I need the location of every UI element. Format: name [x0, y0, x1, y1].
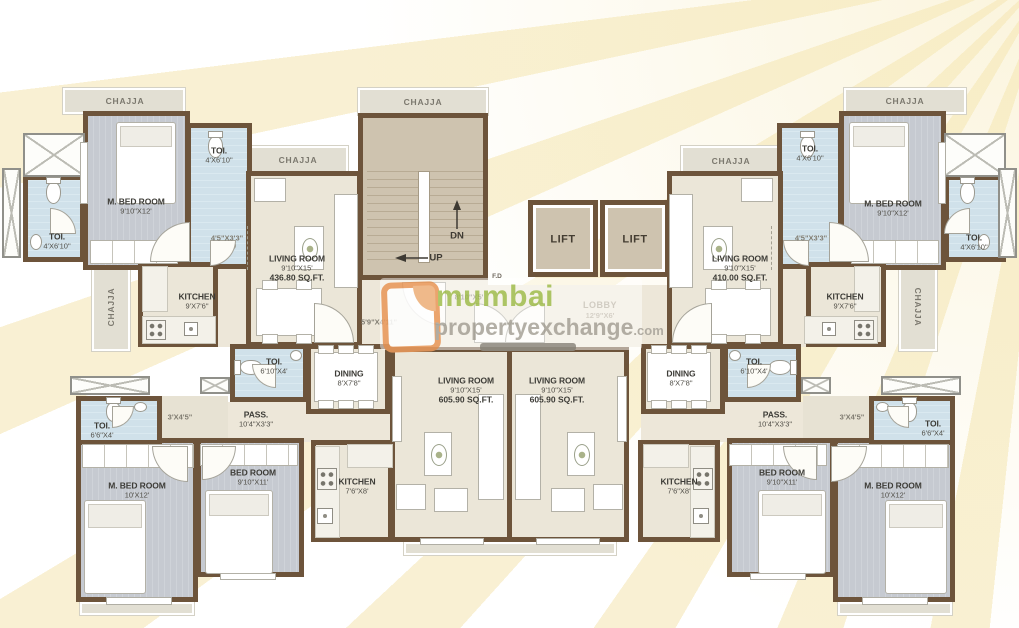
coffee-table-icon	[567, 432, 595, 476]
washbasin-icon	[290, 350, 302, 361]
passage	[215, 262, 250, 347]
chair-icon	[651, 345, 667, 354]
planter	[998, 168, 1017, 258]
label-lift-1: LIFT	[550, 233, 575, 246]
tv-unit-icon	[392, 376, 402, 442]
chair-icon	[318, 400, 334, 409]
label-toilet-top-right-outer: TOI.4'X6'10"	[960, 232, 987, 251]
chair-icon	[691, 345, 707, 354]
label-passage-bottom-left: PASS.10'4"X3'3"	[239, 409, 273, 428]
stove-icon	[854, 320, 874, 340]
washbasin-icon	[134, 402, 147, 412]
dining-table-icon	[705, 288, 771, 336]
sofa-icon	[478, 394, 504, 500]
sofa-icon	[669, 194, 693, 288]
label-chajja: CHAJJA	[886, 96, 925, 106]
window	[80, 142, 88, 204]
duct	[200, 377, 230, 394]
label-passage-stair-side: 5'9"X4'11"	[361, 318, 397, 327]
window	[938, 142, 946, 204]
bed-icon	[84, 500, 146, 594]
label-fire-door: F.D	[492, 273, 502, 281]
kitchen-counter	[347, 444, 393, 468]
label-lobby: LOBBY12'9"X6'	[583, 300, 617, 320]
chair-icon	[296, 334, 312, 344]
label-living-top-left: LIVING ROOM9'10"X15'436.80 SQ.FT.	[269, 253, 325, 282]
chair-icon	[711, 334, 727, 344]
chair-icon	[318, 345, 334, 354]
label-kitchen-bottom-right: KITCHEN7'6"X8'	[660, 476, 697, 495]
coffee-table-icon	[424, 432, 452, 476]
chair-icon	[745, 334, 761, 344]
label-passage-45x33-left: 4'5"X3'3"	[211, 234, 243, 243]
sink-icon	[317, 508, 333, 524]
dashed-boundary	[247, 226, 248, 270]
window	[862, 597, 928, 605]
chair-icon	[551, 488, 585, 512]
bed-icon	[758, 490, 826, 574]
chair-icon	[593, 484, 623, 510]
chair-icon	[434, 488, 468, 512]
sofa-icon	[515, 394, 541, 500]
label-toilet-bottom-right-1: TOI.6'10"X4'	[740, 356, 767, 375]
window	[420, 538, 484, 545]
label-toilet-bottom-left-1: TOI.6'10"X4'	[260, 356, 287, 375]
label-master-bedroom-bottom-left: M. BED ROOM10'X12'	[108, 480, 165, 499]
label-dining-bottom-left: DINING8'X7'8"	[334, 368, 363, 387]
label-passage-45x33-right: 4'5"X3'3"	[795, 234, 827, 243]
kitchen-counter	[643, 444, 689, 468]
duct	[70, 376, 150, 395]
chair-icon	[358, 345, 374, 354]
washbasin-icon	[729, 350, 741, 361]
duct	[23, 133, 85, 177]
kitchen-counter	[142, 266, 168, 312]
label-passage-3x45-right: 3'X4'5"	[840, 413, 865, 422]
sink-icon	[693, 508, 709, 524]
stove-icon	[146, 320, 166, 340]
chair-icon	[262, 334, 278, 344]
tv-unit-icon	[617, 376, 627, 442]
label-bedroom-bottom-right: BED ROOM9'10"X11'	[759, 467, 805, 486]
label-bedroom-bottom-left: BED ROOM9'10"X11'	[230, 467, 276, 486]
duct	[944, 133, 1006, 177]
chair-icon	[358, 400, 374, 409]
toilet-wc-icon	[960, 182, 975, 204]
label-toilet-top-left-inner: TOI.4'X6'10"	[205, 145, 232, 164]
bed-icon	[849, 122, 909, 204]
duct	[881, 376, 961, 395]
label-toilet-top-right-inner: TOI.4'X6'10"	[796, 143, 823, 162]
floor-plan: CHAJJA CHAJJA CHAJJA CHAJJA CHAJJA CHAJJ…	[0, 0, 1019, 628]
window	[220, 573, 276, 580]
label-master-bedroom-top-right: M. BED ROOM9'10"X12'	[864, 198, 921, 217]
label-passage-corridor: 8'10"X5'	[455, 293, 484, 302]
window	[106, 597, 172, 605]
chair-icon	[338, 345, 354, 354]
label-living-bottom-right: LIVING ROOM9'10"X15'605.90 SQ.FT.	[529, 375, 585, 404]
label-living-bottom-left: LIVING ROOM9'10"X15'605.90 SQ.FT.	[438, 375, 494, 404]
label-kitchen-top-right: KITCHEN9'X7'6"	[826, 291, 863, 310]
label-lift-2: LIFT	[622, 233, 647, 246]
window	[536, 538, 600, 545]
window	[750, 573, 806, 580]
label-toilet-bottom-left-2: TOI.6'6"X4'	[90, 420, 113, 439]
chair-icon	[651, 400, 667, 409]
label-toilet-bottom-right-2: TOI.6'6"X4'	[921, 418, 944, 437]
label-kitchen-bottom-left: KITCHEN7'6"X8'	[338, 476, 375, 495]
stairs-direction-arrows	[358, 113, 488, 280]
label-toilet-top-left-outer: TOI.4'X6'10"	[43, 231, 70, 250]
toilet-wc-icon	[769, 360, 791, 375]
label-chajja: CHAJJA	[106, 96, 145, 106]
chair-icon	[671, 345, 687, 354]
label-chajja: CHAJJA	[404, 97, 443, 107]
dining-table-icon	[256, 288, 322, 336]
chair-icon	[671, 400, 687, 409]
label-chajja: CHAJJA	[279, 155, 318, 165]
label-living-top-right: LIVING ROOM9'10"X15'410.00 SQ.FT.	[712, 253, 768, 282]
label-stairs-up: UP	[429, 252, 442, 263]
bed-icon	[885, 500, 947, 594]
label-chajja-vertical: CHAJJA	[106, 288, 116, 327]
chair-icon	[338, 400, 354, 409]
stove-icon	[317, 468, 337, 490]
label-chajja-vertical: CHAJJA	[913, 288, 923, 327]
chair-icon	[396, 484, 426, 510]
kitchen-counter	[315, 446, 340, 538]
bed-icon	[116, 122, 176, 204]
label-chajja: CHAJJA	[712, 156, 751, 166]
label-master-bedroom-bottom-right: M. BED ROOM10'X12'	[864, 480, 921, 499]
armchair-icon	[254, 178, 286, 202]
dashed-boundary	[771, 226, 772, 270]
toilet-wc-icon	[46, 182, 61, 204]
label-stairs-dn: DN	[450, 230, 464, 241]
chair-icon	[691, 400, 707, 409]
sofa-icon	[334, 194, 358, 288]
sink-icon	[184, 322, 198, 336]
label-passage-3x45-left: 3'X4'5"	[168, 413, 193, 422]
label-master-bedroom-top-left: M. BED ROOM9'10"X12'	[107, 196, 164, 215]
washbasin-icon	[30, 234, 42, 250]
duct	[801, 377, 831, 394]
armchair-icon	[741, 178, 773, 202]
sink-icon	[822, 322, 836, 336]
label-kitchen-top-left: KITCHEN9'X7'6"	[178, 291, 215, 310]
label-passage-bottom-right: PASS.10'4"X3'3"	[758, 409, 792, 428]
planter	[2, 168, 21, 258]
bed-icon	[205, 490, 273, 574]
label-dining-bottom-right: DINING8'X7'8"	[666, 368, 695, 387]
